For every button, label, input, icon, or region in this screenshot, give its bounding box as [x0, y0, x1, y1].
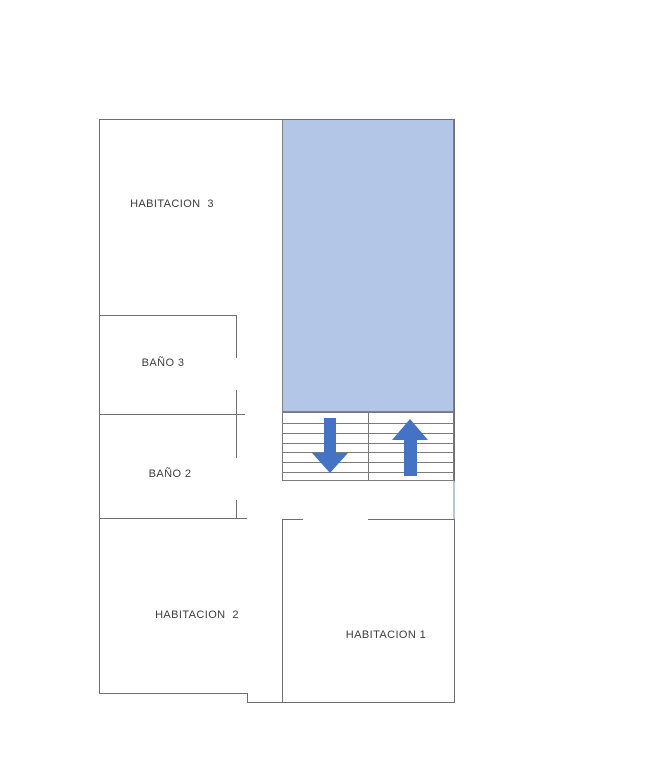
floor-plan-canvas: HABITACION 3 BAÑO 3 BAÑO 2 HABITACION 2 …	[0, 0, 665, 768]
wall-bano3-right-upper	[236, 315, 237, 358]
staircase	[282, 412, 454, 481]
room-label-habitacion-2: HABITACION 2	[155, 609, 239, 621]
outer-wall-right-upper	[454, 119, 455, 482]
room-label-habitacion-1: HABITACION 1	[346, 629, 426, 641]
room-label-habitacion-3: HABITACION 3	[130, 198, 214, 210]
stairwell-void-area	[282, 119, 454, 412]
wall-habitacion1-top-left	[282, 519, 303, 520]
wall-bano2-habitacion2	[99, 518, 247, 519]
outer-wall-bottom-right	[247, 702, 455, 703]
arrow-down-icon	[312, 453, 348, 473]
wall-bano2-right-lower	[236, 500, 237, 519]
outer-wall-bottom-left	[99, 693, 248, 694]
arrow-up-icon	[392, 419, 428, 440]
outer-wall-left	[99, 119, 100, 694]
wall-habitacion3-bano3	[99, 315, 236, 316]
arrow-down-icon	[324, 418, 336, 454]
outer-wall-right-landing	[453, 481, 455, 519]
wall-habitacion1-top-right	[368, 519, 455, 520]
outer-wall-right-lower	[454, 519, 455, 703]
stair-center-divider	[368, 413, 369, 480]
outer-wall-top	[99, 119, 455, 120]
room-label-bano-2: BAÑO 2	[149, 468, 192, 480]
wall-bano3-bano2-right	[236, 390, 237, 458]
arrow-up-icon	[404, 439, 417, 476]
wall-habitacion1-left	[282, 519, 283, 703]
wall-bano3-bano2	[99, 414, 245, 415]
room-label-bano-3: BAÑO 3	[142, 357, 185, 369]
